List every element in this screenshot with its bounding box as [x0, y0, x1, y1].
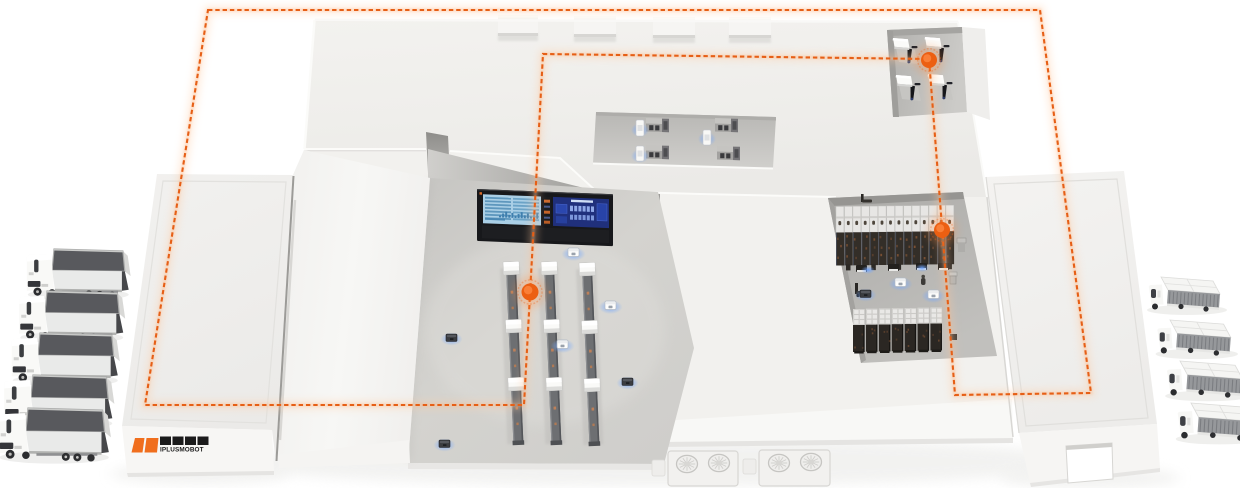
svg-text:IPLUSMOBOT: IPLUSMOBOT: [160, 447, 204, 454]
